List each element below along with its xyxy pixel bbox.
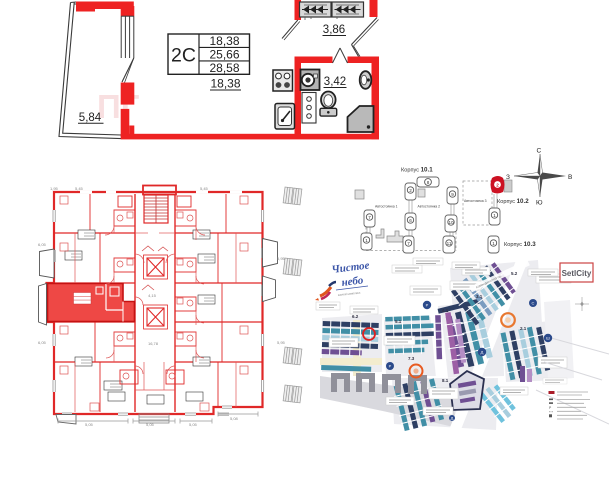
svg-text:3,86: 3,86 (323, 24, 345, 36)
svg-text:16,78: 16,78 (148, 341, 159, 346)
svg-text:5,45: 5,45 (75, 186, 84, 191)
svg-text:Корпус 10.2: Корпус 10.2 (497, 198, 529, 205)
svg-text:5,84: 5,84 (79, 112, 102, 124)
svg-text:Ю: Ю (536, 200, 543, 207)
svg-text:5.1: 5.1 (395, 319, 402, 324)
svg-text:5.2: 5.2 (511, 271, 518, 276)
svg-text:8: 8 (427, 180, 430, 185)
svg-text:5,95: 5,95 (277, 340, 286, 345)
svg-text:Автостоянка 1: Автостоянка 1 (375, 205, 398, 209)
svg-text:2С: 2С (171, 45, 196, 67)
svg-text:2: 2 (496, 183, 499, 188)
svg-text:4.1: 4.1 (442, 308, 449, 313)
svg-text:3.1: 3.1 (476, 294, 483, 299)
svg-text:28,58: 28,58 (209, 61, 239, 75)
svg-text:1: 1 (365, 238, 368, 243)
svg-text:18,38: 18,38 (209, 34, 239, 48)
svg-text:Автостоянка 2: Автостоянка 2 (418, 205, 441, 209)
svg-text:25,66: 25,66 (209, 47, 239, 61)
svg-text:С: С (537, 148, 542, 155)
svg-text:5,05: 5,05 (189, 422, 198, 427)
svg-text:9: 9 (451, 192, 454, 197)
svg-text:Корпус 10.3: Корпус 10.3 (504, 241, 536, 248)
svg-text:Автостоянка 3: Автостоянка 3 (464, 199, 487, 203)
svg-text:В: В (568, 174, 572, 181)
svg-text:SetlCity: SetlCity (562, 269, 592, 278)
svg-text:P: P (389, 364, 392, 369)
svg-text:11: 11 (447, 241, 452, 246)
svg-text:5,95: 5,95 (277, 256, 286, 261)
svg-text:5,05: 5,05 (85, 422, 94, 427)
svg-text:Д: Д (451, 416, 454, 421)
svg-text:С: С (532, 301, 535, 306)
svg-text:6,05: 6,05 (38, 242, 47, 247)
svg-text:6,05: 6,05 (38, 340, 47, 345)
svg-text:5,45: 5,45 (200, 186, 209, 191)
svg-text:5,05: 5,05 (146, 422, 155, 427)
svg-text:5,08: 5,08 (230, 416, 239, 421)
svg-text:1: 1 (492, 241, 495, 246)
svg-text:7: 7 (407, 241, 410, 246)
svg-text:6.2: 6.2 (352, 314, 359, 319)
svg-text:Ш: Ш (546, 336, 550, 341)
svg-text:6: 6 (409, 218, 412, 223)
svg-text:2.1: 2.1 (520, 326, 527, 331)
svg-text:10: 10 (448, 220, 454, 225)
svg-text:P: P (426, 303, 429, 308)
svg-text:7: 7 (368, 215, 371, 220)
svg-text:Д: Д (481, 350, 484, 355)
svg-text:1: 1 (493, 213, 496, 218)
svg-text:18,38: 18,38 (210, 77, 240, 91)
svg-text:7.3: 7.3 (408, 356, 415, 361)
svg-text:4,15: 4,15 (148, 293, 157, 298)
svg-text:3,42: 3,42 (324, 76, 346, 88)
svg-text:Корпус 10.1: Корпус 10.1 (401, 167, 433, 174)
svg-text:2: 2 (409, 188, 412, 193)
svg-text:8.1: 8.1 (442, 378, 449, 383)
svg-text:1,95: 1,95 (50, 186, 59, 191)
